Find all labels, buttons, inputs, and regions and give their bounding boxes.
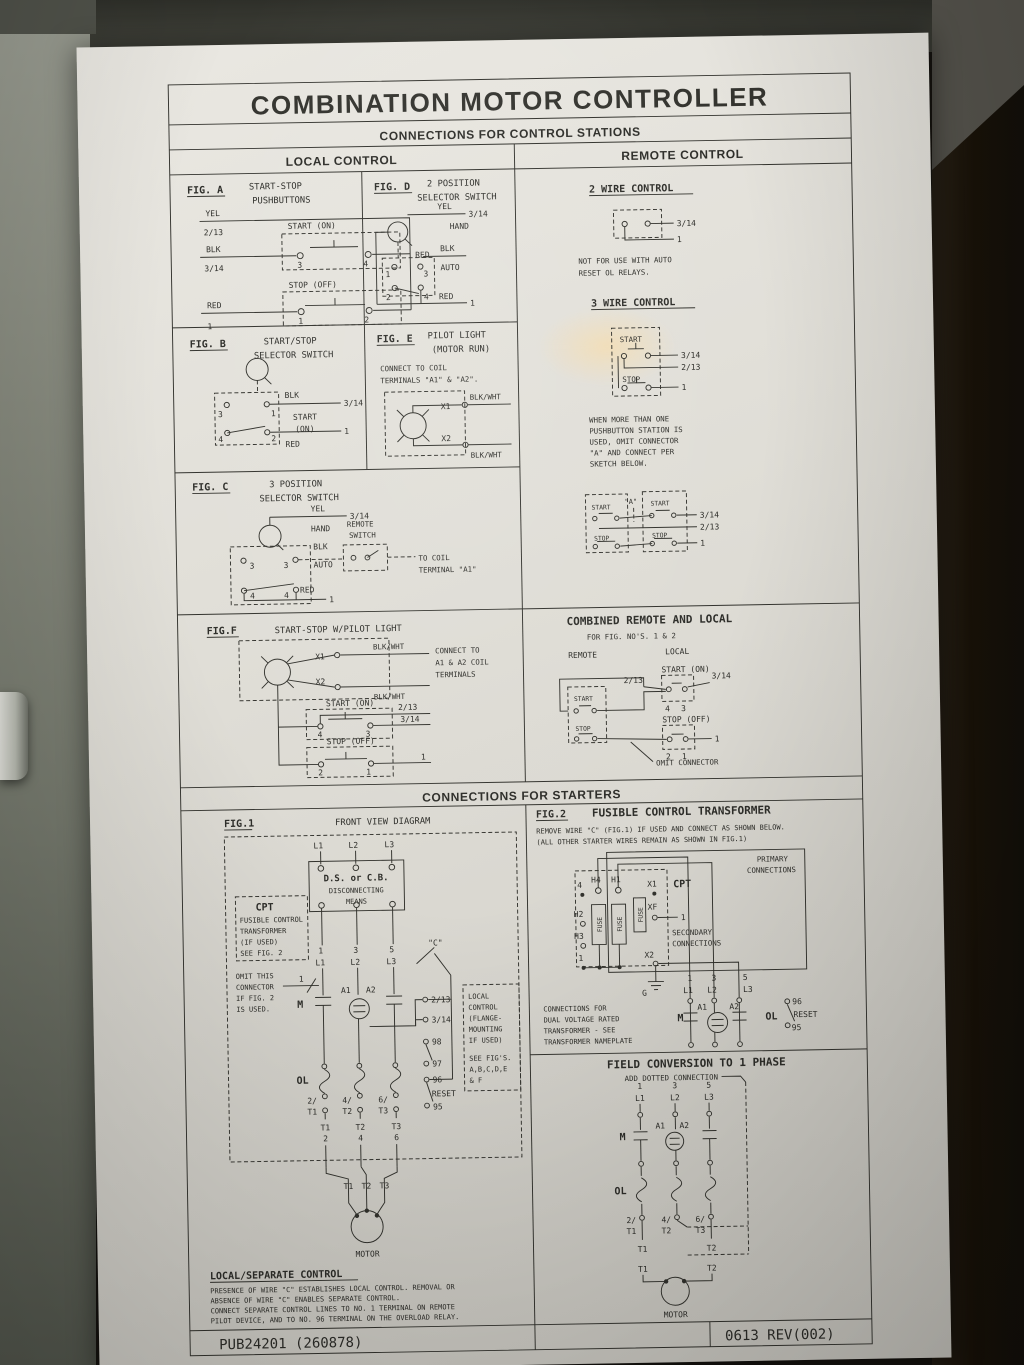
fig-f-note: CONNECT TO: [435, 646, 480, 656]
terminal-h3: H3: [574, 932, 584, 941]
fig1-title: FRONT VIEW DIAGRAM: [335, 816, 431, 828]
local-control-note: IF USED): [469, 1036, 503, 1045]
on-label: (ON): [295, 424, 314, 433]
terminal-3: 3: [672, 1081, 677, 1090]
fig-e-note2: TERMINALS "A1" & "A2".: [380, 375, 478, 386]
combined-subtitle: FOR FIG. NO'S. 1 & 2: [587, 631, 676, 642]
lsc-line: PRESENCE OF WIRE "C" ESTABLISHES LOCAL C…: [210, 1283, 455, 1295]
local-control-note: CONTROL: [468, 1003, 498, 1012]
terminal-2: 2: [318, 768, 323, 777]
contactor-m: M: [297, 1000, 303, 1011]
terminal-3: 3: [283, 561, 288, 570]
terminal-3: 3: [297, 261, 302, 270]
fig-d-title2: SELECTOR SWITCH: [417, 192, 497, 203]
wire-213: 2/13: [624, 676, 644, 685]
omit-connector-label: OMIT CONNECTOR: [656, 757, 719, 767]
line-l3: L3: [743, 985, 753, 994]
wire-1: 1: [700, 539, 705, 548]
t1-label: T1: [638, 1245, 648, 1254]
secondary-label2: CONNECTIONS: [672, 938, 721, 948]
terminal-1: 1: [298, 317, 303, 326]
auto-label: AUTO: [313, 560, 333, 569]
terminal-5: 5: [706, 1081, 711, 1090]
terminal-3: 3: [711, 974, 716, 983]
fig-d-2-position-selector: FIG. D 2 POSITION SELECTOR SWITCH YEL 3/…: [374, 178, 499, 309]
wire-213: 2/13: [204, 228, 224, 237]
terminal-95: 95: [433, 1102, 443, 1111]
remote-two-station-sketch: "A" START START 3/14 2/13 STOP STOP: [585, 490, 719, 552]
selector-knob-icon: [246, 358, 268, 380]
wire-blkwht: BLK/WHT: [373, 642, 405, 652]
wire-1: 1: [677, 235, 682, 244]
terminal-97: 97: [432, 1059, 442, 1068]
terminal-1: 1: [271, 409, 276, 418]
secondary-label: SECONDARY: [672, 928, 713, 938]
terminal-6-t3: T3: [378, 1106, 388, 1115]
local-control-note: (FLANGE-: [468, 1014, 502, 1023]
fig2-fusible-control-transformer: FIG.2 FUSIBLE CONTROL TRANSFORMER REMOVE…: [536, 803, 818, 1050]
line-l1: L1: [683, 986, 693, 995]
coil-symbol: [349, 999, 369, 1019]
disconnect-label: D.S. or C.B.: [323, 873, 388, 884]
hand-label: HAND: [450, 222, 470, 231]
wire-yel: YEL: [311, 504, 326, 513]
hand-label: HAND: [311, 524, 331, 533]
omit-note: IS USED.: [236, 1005, 270, 1014]
line-l3: L3: [704, 1093, 714, 1102]
terminal-h1: H1: [611, 875, 621, 884]
primary-label: PRIMARY: [757, 854, 789, 864]
wire-1: 1: [207, 322, 212, 331]
terminal-3: 3: [353, 946, 358, 955]
t2-label: T2: [707, 1244, 717, 1253]
3-wire-note: SKETCH BELOW.: [590, 459, 648, 469]
wire-1: 1: [421, 753, 426, 762]
coil-a2: A2: [366, 985, 376, 994]
dual-voltage-note: DUAL VOLTAGE RATED: [543, 1015, 619, 1024]
photo-of-motor-controller-label: COMBINATION MOTOR CONTROLLER CONNECTIONS…: [0, 0, 1024, 1365]
stop-off-label: STOP (OFF): [662, 715, 710, 725]
terminal-x1: X1: [441, 402, 451, 411]
wire-314: 3/14: [700, 510, 720, 519]
terminal-x1: X1: [647, 880, 657, 889]
fig1-front-view: FIG.1 FRONT VIEW DIAGRAM L1 L2 L3 D.S. o…: [224, 814, 524, 1261]
cpt-note: SEE FIG. 2: [240, 949, 282, 958]
fig-c-id: FIG. C: [192, 482, 228, 494]
fig-d-id: FIG. D: [374, 182, 410, 194]
terminal-2-t1: 2/: [626, 1216, 636, 1225]
wire-red: RED: [300, 585, 315, 594]
start-label: START: [650, 500, 669, 507]
terminal-4: 4: [250, 592, 255, 601]
fig1-id: FIG.1: [224, 819, 254, 831]
2-wire-note: NOT FOR USE WITH AUTO: [578, 255, 672, 266]
cpt-note: (IF USED): [240, 938, 278, 947]
terminal-4: 4: [363, 259, 368, 268]
t1-2: 2: [323, 1134, 328, 1143]
terminal-3: 3: [681, 704, 686, 713]
terminal-6-t3: 6/: [695, 1215, 705, 1224]
terminal-4: 4: [665, 704, 670, 713]
terminal-x2: X2: [316, 677, 326, 686]
fig2-note2: (ALL OTHER STARTER WIRES REMAIN AS SHOWN…: [536, 835, 747, 847]
fig-e-title: PILOT LIGHT: [428, 330, 487, 341]
fuse-label: FUSE: [597, 917, 604, 932]
omit-note: OMIT THIS: [236, 972, 274, 981]
start-on-label: START (ON): [288, 221, 336, 231]
lsc-line: PILOT DEVICE, AND TO NO. 96 TERMINAL ON …: [211, 1313, 460, 1325]
terminal-3: 3: [250, 562, 255, 571]
fig-f-title: START-STOP W/PILOT LIGHT: [275, 624, 403, 636]
line-l2: L2: [670, 1093, 680, 1102]
local-control-note: MOUNTING: [469, 1025, 503, 1034]
fig-c-3-position-selector: FIG. C 3 POSITION SELECTOR SWITCH YEL 3/…: [192, 477, 477, 607]
title-block: PUB24201 (260878) 0613 REV(002): [219, 1327, 835, 1354]
terminal-1: 1: [637, 1082, 642, 1091]
section-starters: CONNECTIONS FOR STARTERS: [422, 787, 621, 804]
remote-label: REMOTE: [568, 651, 597, 661]
to-coil-label: TO COIL: [418, 553, 450, 563]
terminal-2-t1: 2/: [307, 1096, 317, 1105]
coil-a1: A1: [341, 986, 351, 995]
fig-b-start-stop-selector: FIG. B START/STOP SELECTOR SWITCH 3 1 4 …: [190, 336, 364, 451]
line-l2: L2: [707, 986, 717, 995]
terminal-98: 98: [432, 1037, 442, 1046]
wire-blk: BLK: [285, 391, 300, 400]
fig-b-title2: SELECTOR SWITCH: [254, 350, 334, 361]
line-l2: L2: [350, 958, 360, 967]
line-l1: L1: [315, 958, 325, 967]
terminal-95: 95: [792, 1023, 802, 1032]
coil-a2: A2: [729, 1002, 739, 1011]
wire-213: 2/13: [398, 703, 418, 712]
wire-blk: BLK: [440, 244, 455, 253]
rev-number: 0613 REV(002): [725, 1327, 835, 1345]
wire-1: 1: [715, 734, 720, 743]
start-label: START: [592, 504, 611, 511]
terminal-4: 4: [577, 881, 582, 890]
fuse-label: FUSE: [638, 907, 645, 922]
combined-title: COMBINED REMOTE AND LOCAL: [566, 612, 732, 628]
column-remote-control: REMOTE CONTROL: [621, 147, 744, 163]
wire-314: 3/14: [204, 264, 224, 273]
wire-213: 2/13: [681, 363, 701, 372]
fig-f-start-stop-pilot: FIG.F START-STOP W/PILOT LIGHT X1 X2 BLK…: [207, 621, 492, 779]
terminal-x2: X2: [441, 434, 451, 443]
diagram-grid: [168, 73, 872, 1356]
fig-a-title: START-STOP: [249, 182, 302, 193]
wire-213: 2/13: [700, 522, 720, 531]
wire-blkwht: BLK/WHT: [374, 692, 406, 702]
motor-t1: T1: [638, 1265, 648, 1274]
terminal-4-t2: T2: [342, 1107, 352, 1116]
dual-voltage-note: TRANSFORMER NAMEPLATE: [544, 1037, 633, 1047]
wire-314: 3/14: [711, 671, 731, 680]
contactor-m: M: [619, 1132, 625, 1143]
local-control-note: & F: [470, 1077, 483, 1085]
combined-remote-local: COMBINED REMOTE AND LOCAL FOR FIG. NO'S.…: [558, 612, 735, 769]
fuse-label: FUSE: [617, 916, 624, 931]
remote-switch-label: REMOTE: [347, 519, 374, 528]
wiring-diagram: COMBINATION MOTOR CONTROLLER CONNECTIONS…: [167, 66, 873, 1362]
wire-1: 1: [329, 595, 334, 604]
wire-blk: BLK: [313, 542, 328, 551]
t2-label: T2: [355, 1123, 365, 1132]
fig-f-id: FIG.F: [207, 626, 237, 638]
wire-1: 1: [681, 383, 686, 392]
motor-label: MOTOR: [664, 1310, 688, 1319]
fig-c-title2: SELECTOR SWITCH: [259, 493, 339, 504]
fig-e-pilot-light: FIG. E PILOT LIGHT (MOTOR RUN) CONNECT T…: [377, 330, 512, 461]
field-conversion-1-phase: FIELD CONVERSION TO 1 PHASE ADD DOTTED C…: [607, 1055, 790, 1320]
terminal-1: 1: [385, 270, 390, 279]
auto-label: AUTO: [440, 263, 460, 272]
2-wire-note2: RESET OL RELAYS.: [578, 268, 649, 278]
local-control-note: SEE FIG'S.: [469, 1054, 511, 1063]
wire-1: 1: [344, 427, 349, 436]
terminal-2-t1: T1: [307, 1107, 317, 1116]
terminal-6-t3: 6/: [378, 1095, 388, 1104]
terminal-3: 3: [423, 269, 428, 278]
reset-label: RESET: [793, 1010, 817, 1019]
wire-314: 3/14: [677, 219, 697, 228]
line-l1: L1: [313, 841, 323, 850]
terminal-xf: XF: [648, 903, 658, 912]
fig-b-id: FIG. B: [190, 339, 226, 351]
fig-c-title: 3 POSITION: [269, 479, 322, 490]
local-control-note: A,B,C,D,E: [469, 1065, 507, 1074]
reset-label: RESET: [432, 1089, 456, 1098]
wire-blkwht: BLK/WHT: [470, 392, 502, 402]
wire-1: 1: [681, 913, 686, 922]
coil-a1: A1: [697, 1003, 707, 1012]
wire-314: 3/14: [431, 1015, 451, 1024]
remote-3-wire-control: 3 WIRE CONTROL START 3/14 2/13 STOP 1 WH…: [587, 297, 702, 469]
wire-yel: YEL: [205, 209, 220, 218]
wire-314: 3/14: [344, 399, 364, 408]
wire-yel: YEL: [437, 202, 452, 211]
fig-e-id: FIG. E: [377, 334, 413, 346]
terminal-2: 2: [364, 315, 369, 324]
terminal-4: 4: [424, 292, 429, 301]
page-title: COMBINATION MOTOR CONTROLLER: [250, 81, 768, 120]
remote-2-wire-control: 2 WIRE CONTROL 3/14 1 NOT FOR USE WITH A…: [577, 183, 697, 278]
2-wire-title: 2 WIRE CONTROL: [589, 183, 673, 195]
start-label: START: [620, 335, 643, 344]
start-label: START: [293, 412, 317, 421]
wiring-diagram-label: COMBINATION MOTOR CONTROLLER CONNECTIONS…: [77, 33, 952, 1365]
wire-red: RED: [207, 301, 222, 310]
section-control-stations: CONNECTIONS FOR CONTROL STATIONS: [379, 125, 640, 144]
disconnect-label2: DISCONNECTING: [329, 886, 384, 895]
terminal-1: 1: [318, 946, 323, 955]
overload-ol: OL: [765, 1011, 777, 1022]
cpt-note: TRANSFORMER: [240, 927, 287, 936]
fig2-note: REMOVE WIRE "C" (FIG.1) IF USED AND CONN…: [536, 823, 785, 835]
fig-a-id: FIG. A: [187, 185, 223, 197]
line-l1: L1: [635, 1094, 645, 1103]
wire-red: RED: [285, 440, 300, 449]
dual-voltage-note: TRANSFORMER - SEE: [544, 1026, 616, 1035]
start-on-label: START (ON): [326, 698, 374, 708]
line-l3: L3: [386, 957, 396, 966]
local-control-note: LOCAL: [468, 992, 489, 1000]
local-label: LOCAL: [665, 647, 689, 656]
pub-number: PUB24201 (260878): [219, 1335, 363, 1353]
3-wire-title: 3 WIRE CONTROL: [591, 297, 675, 309]
contactor-m: M: [677, 1013, 683, 1024]
t1-label: T1: [320, 1123, 330, 1132]
terminal-2: 2: [386, 293, 391, 302]
terminal-4-t2: 4/: [342, 1096, 352, 1105]
cpt-note: FUSIBLE CONTROL: [240, 916, 303, 925]
to-coil-label2: TERMINAL "A1": [419, 565, 477, 575]
wire-red-right: RED: [415, 250, 430, 259]
omit-note: IF FIG. 2: [236, 994, 274, 1003]
terminal-h2: H2: [574, 910, 584, 919]
coil-symbol: [707, 1012, 727, 1032]
terminal-5: 5: [743, 973, 748, 982]
stop-off-label: STOP (OFF): [327, 736, 375, 746]
terminal-1: 1: [366, 768, 371, 777]
fig2-title: FUSIBLE CONTROL TRANSFORMER: [592, 804, 771, 820]
fig-d-title: 2 POSITION: [427, 179, 480, 190]
fig-a-start-stop-pushbuttons: FIG. A START-STOP PUSHBUTTONS YEL 2/13 B…: [187, 179, 431, 331]
enclosure-corner: [0, 0, 96, 34]
terminal-96: 96: [792, 997, 802, 1006]
fig-e-title2: (MOTOR RUN): [432, 344, 490, 355]
terminal-5: 5: [389, 945, 394, 954]
motor-t2: T2: [707, 1264, 717, 1273]
3-wire-note: USED, OMIT CONNECTOR: [589, 436, 679, 447]
terminal-4: 4: [284, 591, 289, 600]
column-local-control: LOCAL CONTROL: [286, 153, 398, 169]
overload-ol: OL: [296, 1076, 308, 1087]
t3-label: T3: [391, 1122, 401, 1131]
coil-a1: A1: [655, 1121, 665, 1130]
primary-label2: CONNECTIONS: [747, 865, 796, 875]
wire-blk: BLK: [206, 245, 221, 254]
wire-314: 3/14: [400, 715, 420, 724]
terminal-4: 4: [317, 730, 322, 739]
wire-blkwht: BLK/WHT: [471, 450, 503, 460]
3-wire-note: WHEN MORE THAN ONE: [589, 414, 669, 424]
fig-b-title: START/STOP: [264, 336, 317, 347]
wire-c-label: "C": [428, 938, 443, 947]
local-separate-control: LOCAL/SEPARATE CONTROL PRESENCE OF WIRE …: [210, 1267, 460, 1325]
wire-1: 1: [470, 299, 475, 308]
connector-1: 1: [299, 975, 304, 984]
terminal-2: 2: [271, 434, 276, 443]
stop-label: STOP: [575, 726, 590, 733]
start-on-label: START (ON): [661, 665, 709, 675]
line-l2: L2: [348, 841, 358, 850]
overload-ol: OL: [614, 1186, 626, 1197]
wire-314: 3/14: [681, 351, 701, 360]
wire-314: 3/14: [468, 209, 488, 218]
cpt-label: CPT: [255, 902, 273, 913]
connector-a-label: "A": [624, 498, 637, 506]
fig-f-note3: TERMINALS: [435, 670, 475, 680]
wire-red: RED: [439, 292, 454, 301]
terminal-h4: H4: [591, 876, 601, 885]
t2-4: 4: [358, 1134, 363, 1143]
ground-g: G: [642, 989, 647, 998]
line-l3: L3: [384, 840, 394, 849]
remote-switch-label2: SWITCH: [349, 530, 376, 539]
terminal-3: 3: [218, 410, 223, 419]
coil-symbol: [666, 1132, 684, 1150]
omit-note: CONNECTOR: [236, 983, 275, 992]
selector-knob-icon: [259, 525, 281, 547]
3-wire-note: PUSHBUTTON STATION IS: [589, 425, 683, 436]
fc-title: FIELD CONVERSION TO 1 PHASE: [607, 1055, 786, 1071]
3-wire-note: "A" AND CONNECT PER: [590, 447, 675, 457]
terminal-4-t2: T2: [662, 1226, 672, 1235]
door-handle: [0, 692, 28, 780]
terminal-1: 1: [687, 974, 692, 983]
fig-f-note2: A1 & A2 COIL: [435, 657, 489, 667]
start-label: START: [574, 696, 593, 703]
terminal-x2: X2: [644, 951, 654, 960]
stop-off-label: STOP (OFF): [289, 280, 337, 290]
motor-label: MOTOR: [355, 1249, 379, 1258]
terminal-4-t2: 4/: [661, 1215, 671, 1224]
fig-a-title2: PUSHBUTTONS: [252, 195, 310, 206]
fig2-id: FIG.2: [536, 809, 566, 821]
terminal-4: 4: [218, 435, 223, 444]
terminal-x1: X1: [315, 652, 325, 661]
terminal-2-t1: T1: [627, 1227, 637, 1236]
dual-voltage-note: CONNECTIONS FOR: [543, 1004, 607, 1013]
t3-6: 6: [394, 1133, 399, 1142]
fig-e-note: CONNECT TO COIL: [380, 363, 447, 373]
terminal-1: 1: [578, 954, 583, 963]
coil-a2: A2: [679, 1121, 689, 1130]
